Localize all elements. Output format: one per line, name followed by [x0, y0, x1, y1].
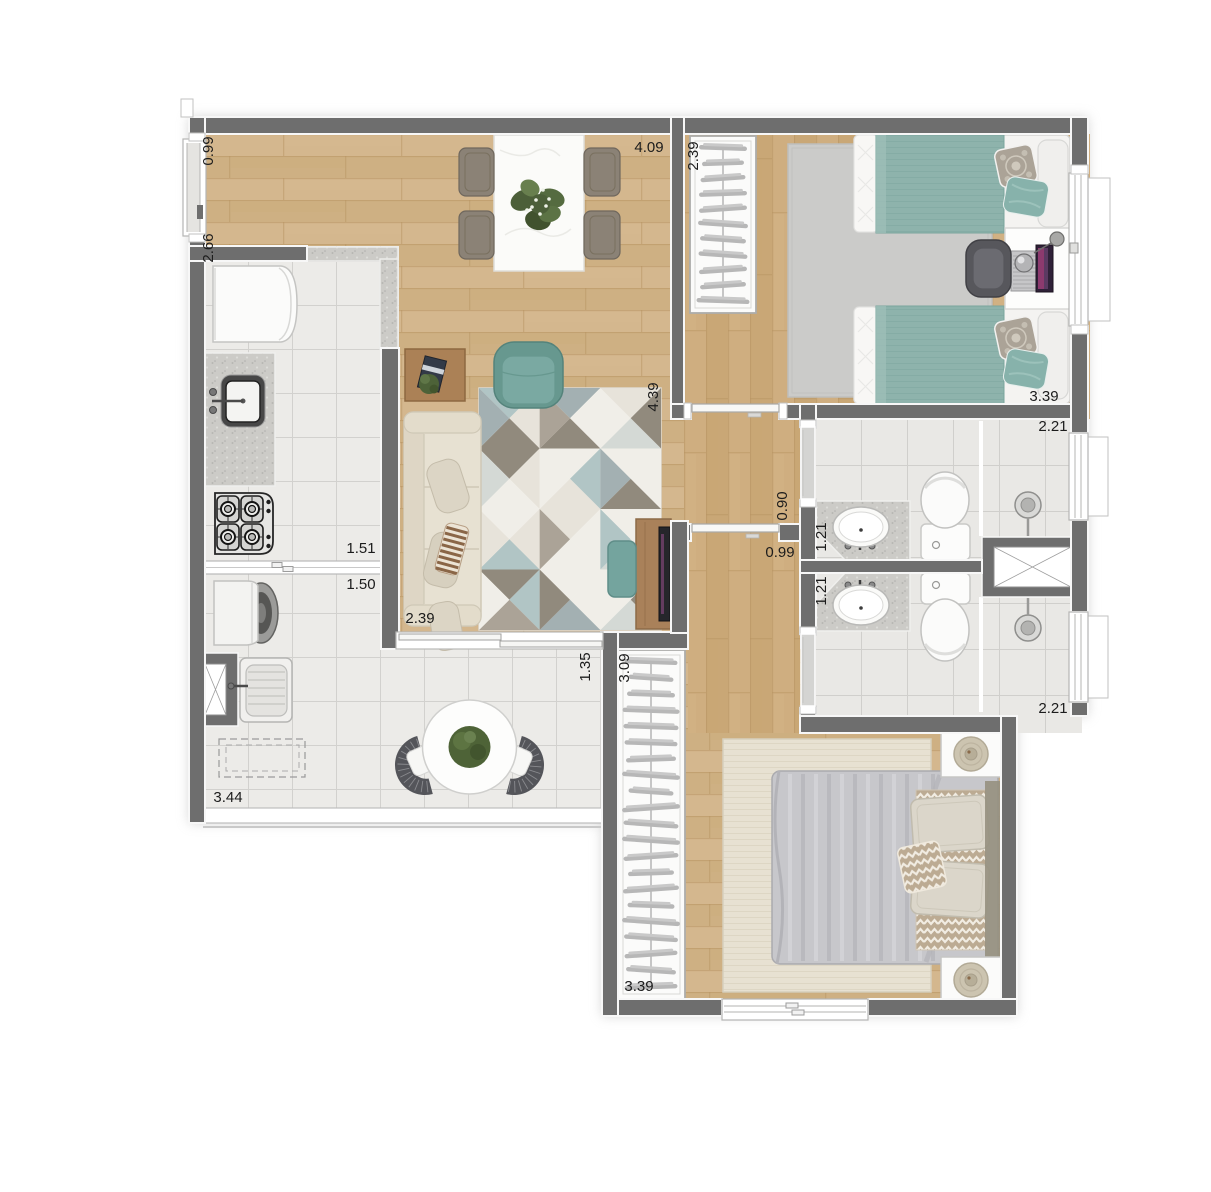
- svg-text:0.90: 0.90: [774, 491, 791, 520]
- svg-text:2.21: 2.21: [1038, 700, 1067, 717]
- svg-text:3.09: 3.09: [616, 653, 633, 682]
- svg-text:4.39: 4.39: [645, 382, 662, 411]
- svg-text:4.09: 4.09: [634, 139, 663, 156]
- svg-text:0.99: 0.99: [200, 136, 217, 165]
- svg-text:1.21: 1.21: [813, 522, 830, 551]
- svg-text:2.39: 2.39: [685, 141, 702, 170]
- svg-text:3.44: 3.44: [213, 789, 242, 806]
- svg-text:1.35: 1.35: [577, 652, 594, 681]
- svg-text:3.39: 3.39: [624, 978, 653, 995]
- svg-text:1.21: 1.21: [813, 576, 830, 605]
- svg-text:2.39: 2.39: [405, 610, 434, 627]
- svg-text:3.39: 3.39: [1029, 388, 1058, 405]
- svg-text:0.99: 0.99: [765, 544, 794, 561]
- svg-text:1.51: 1.51: [346, 540, 375, 557]
- svg-text:2.21: 2.21: [1038, 418, 1067, 435]
- svg-text:1.50: 1.50: [346, 576, 375, 593]
- svg-text:2.66: 2.66: [200, 233, 217, 262]
